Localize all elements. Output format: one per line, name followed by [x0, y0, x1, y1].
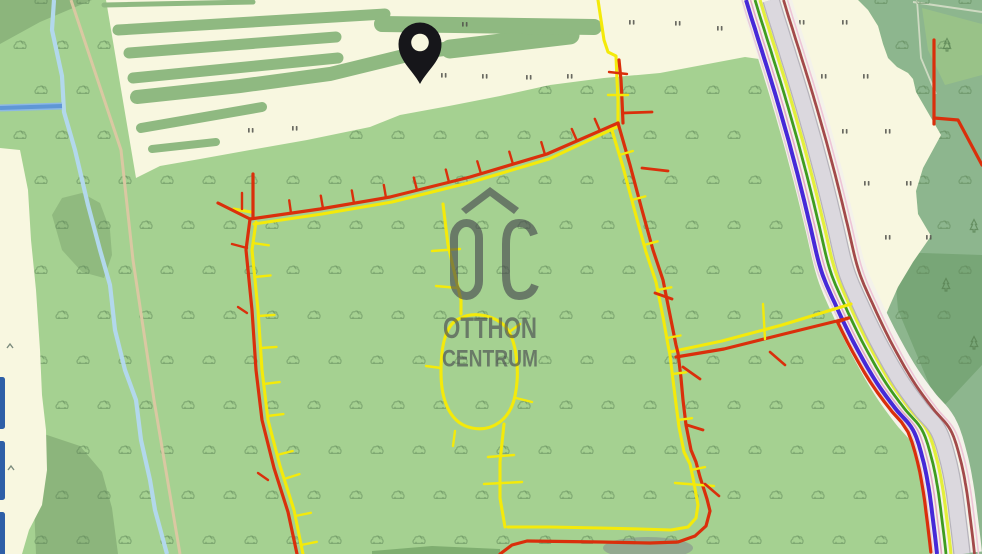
svg-text:CENTRUM: CENTRUM: [442, 346, 538, 373]
svg-text:OTTHON: OTTHON: [443, 312, 537, 345]
